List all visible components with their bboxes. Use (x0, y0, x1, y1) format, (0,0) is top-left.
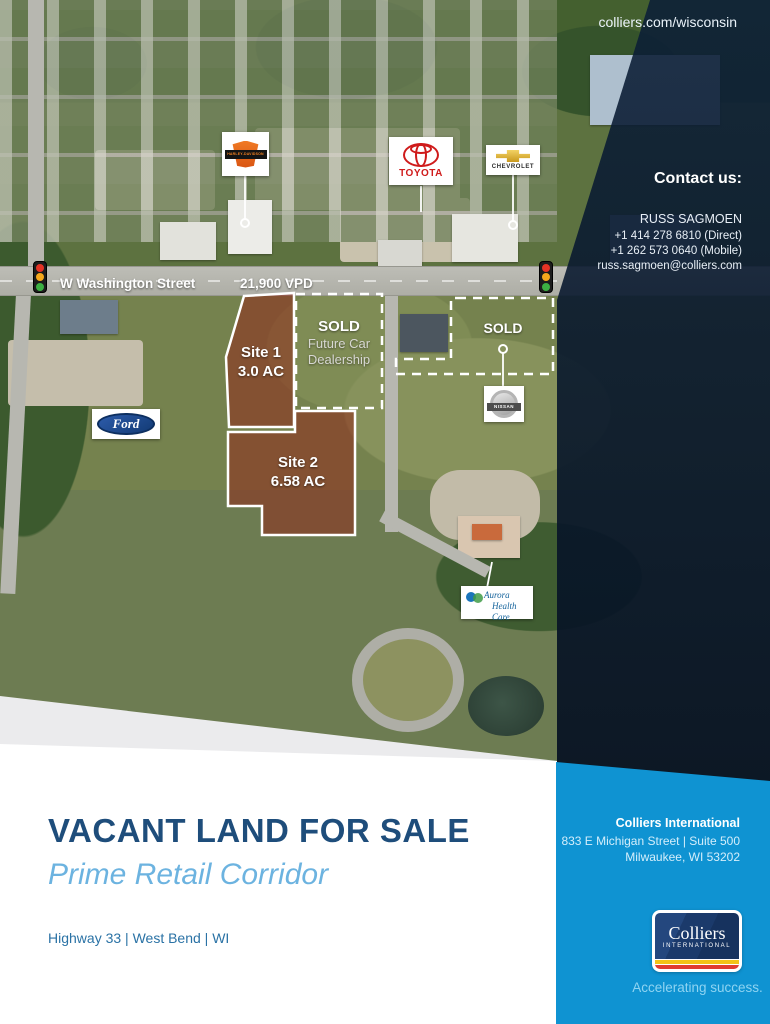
company-name: Colliers International (561, 816, 740, 830)
chevrolet-icon (496, 150, 530, 162)
contact-phone-mobile: +1 262 573 0640 (Mobile) (597, 244, 742, 259)
site1-name: Site 1 (226, 343, 296, 362)
aurora-label-line1: Aurora (484, 590, 528, 601)
contact-block: Contact us: RUSS SAGMOEN +1 414 278 6810… (597, 170, 742, 274)
sold-nissan-boundary (396, 298, 553, 374)
nissan-label: NISSAN (487, 403, 521, 411)
colliers-logo-subtext: INTERNATIONAL (663, 943, 731, 949)
contact-email[interactable]: russ.sagmoen@colliers.com (597, 259, 742, 274)
nissan-icon: NISSAN (490, 390, 518, 418)
sold-sub-label: Future Car Dealership (296, 336, 382, 368)
aurora-label: Aurora Health Care (484, 590, 528, 623)
aurora-label-line2: Health Care (492, 601, 528, 623)
street-label: W Washington Street (60, 276, 195, 291)
chevrolet-sign: CHEVROLET (486, 145, 540, 175)
sold-nissan-label: SOLD (468, 320, 538, 336)
traffic-light-icon (33, 261, 47, 293)
traffic-count-label: 21,900 VPD (240, 276, 313, 291)
ford-label: Ford (113, 416, 140, 432)
page-title: VACANT LAND FOR SALE (48, 812, 470, 850)
harley-davidson-sign: HARLEY-DAVIDSON (222, 132, 269, 176)
company-address-block: Colliers International 833 E Michigan St… (561, 816, 740, 865)
colliers-logo-wordmark: Colliers (669, 924, 726, 942)
page-subtitle: Prime Retail Corridor (48, 858, 470, 892)
chevrolet-label: CHEVROLET (492, 164, 534, 170)
site1-acreage: 3.0 AC (226, 362, 296, 381)
aurora-icon (466, 592, 484, 603)
company-address-line2: Milwaukee, WI 53202 (561, 849, 740, 865)
contact-name: RUSS SAGMOEN (597, 212, 742, 227)
sold-word: SOLD (468, 320, 538, 336)
aurora-health-care-sign: Aurora Health Care (461, 586, 533, 619)
leader-ring (241, 219, 249, 227)
sold-word: SOLD (296, 318, 382, 335)
toyota-icon (403, 143, 439, 167)
colliers-logo: Colliers INTERNATIONAL (652, 910, 742, 972)
logo-red-stripe (655, 964, 739, 969)
leader-ring (509, 221, 517, 229)
footer-left: VACANT LAND FOR SALE Prime Retail Corrid… (48, 812, 470, 946)
ford-icon: Ford (97, 413, 155, 435)
flyer-page: W Washington Street 21,900 VPD Site 1 3.… (0, 0, 770, 1024)
harley-davidson-icon: HARLEY-DAVIDSON (230, 141, 262, 168)
site1-label: Site 1 3.0 AC (226, 343, 296, 381)
harley-davidson-label: HARLEY-DAVIDSON (225, 150, 267, 159)
location-line: Highway 33 | West Bend | WI (48, 930, 470, 946)
ford-sign: Ford (92, 409, 160, 439)
toyota-label: TOYOTA (399, 168, 443, 179)
toyota-sign: TOYOTA (389, 137, 453, 185)
tagline: Accelerating success. (615, 980, 770, 995)
sold-dealership-label: SOLD Future Car Dealership (296, 318, 382, 368)
contact-heading: Contact us: (597, 170, 742, 188)
traffic-light-icon (539, 261, 553, 293)
site2-acreage: 6.58 AC (258, 472, 338, 491)
leader-line (487, 562, 492, 588)
nissan-sign: NISSAN (484, 386, 524, 422)
site2-name: Site 2 (258, 453, 338, 472)
contact-phone-direct: +1 414 278 6810 (Direct) (597, 229, 742, 244)
company-address-line1: 833 E Michigan Street | Suite 500 (561, 833, 740, 849)
site2-label: Site 2 6.58 AC (258, 453, 338, 491)
leader-ring (499, 345, 507, 353)
website-link[interactable]: colliers.com/wisconsin (599, 14, 737, 30)
